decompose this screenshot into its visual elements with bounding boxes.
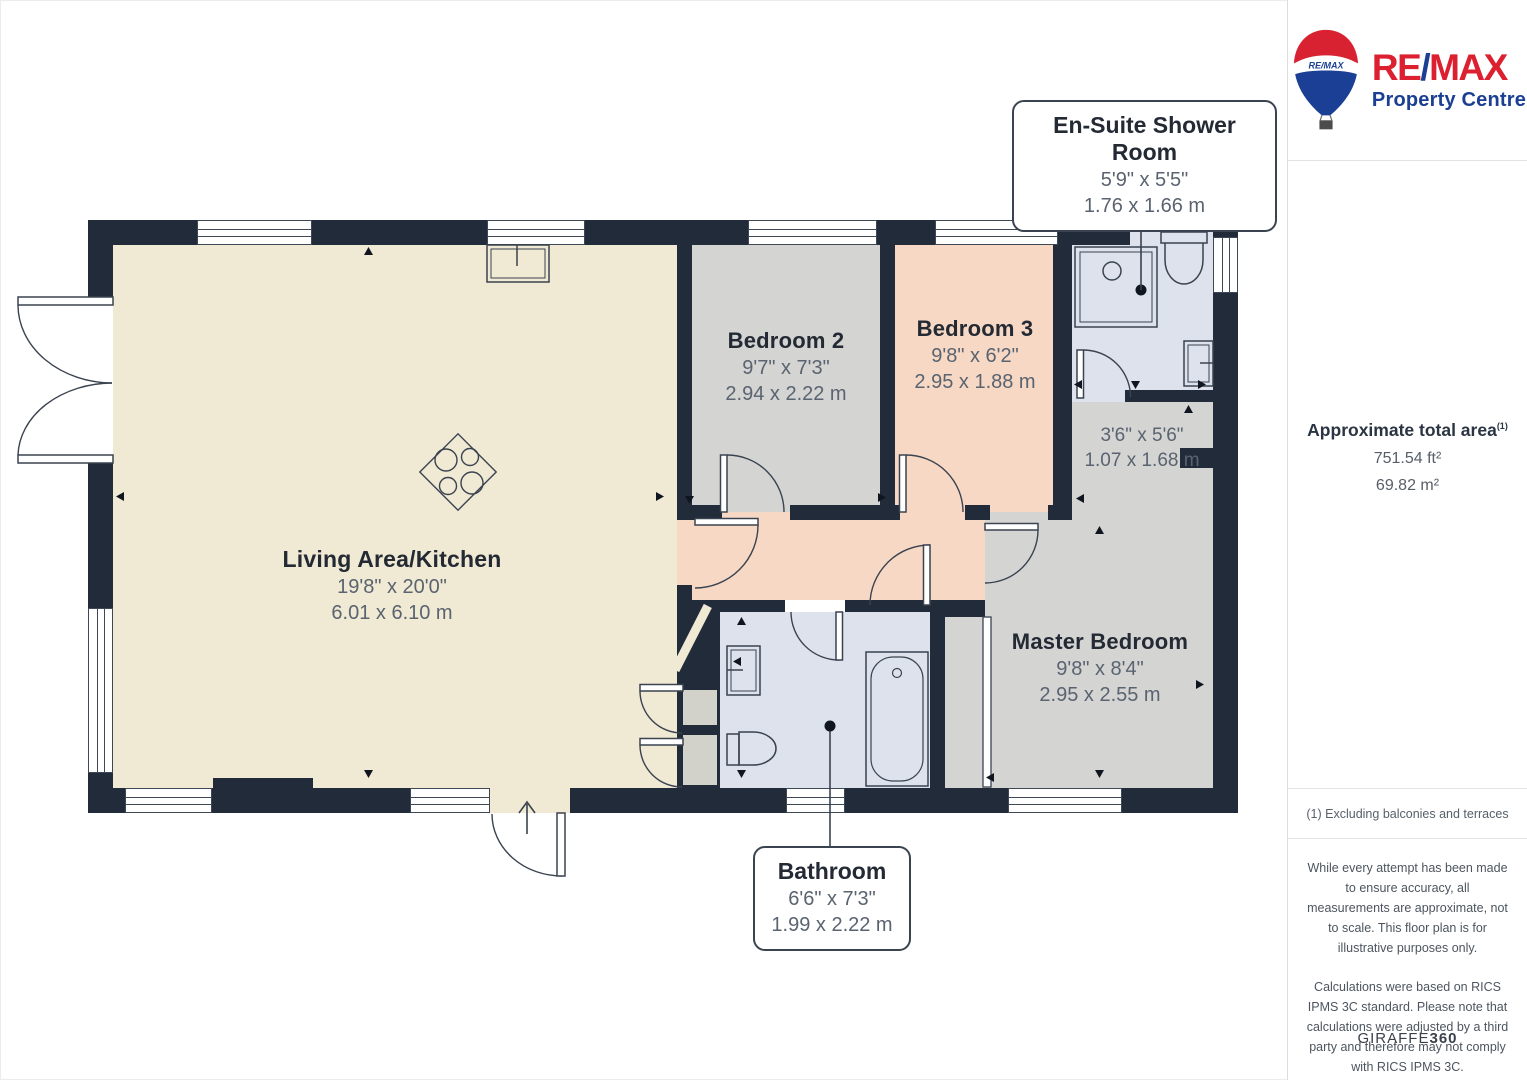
- room-dim-imperial: 9'7" x 7'3": [725, 357, 846, 380]
- cupboard-door: [640, 739, 683, 788]
- room-dim-imperial: 5'9" x 5'5": [1028, 169, 1261, 192]
- ensuite-sink-icon: [1184, 341, 1213, 386]
- room-dim-imperial: 3'6" x 5'6": [1084, 425, 1199, 447]
- room-label-living: Living Area/Kitchen 19'8" x 20'0" 6.01 x…: [283, 546, 502, 625]
- callout-bathroom: Bathroom 6'6" x 7'3" 1.99 x 2.22 m: [753, 846, 911, 951]
- bathtub-icon: [866, 652, 928, 786]
- bathroom-sink-icon: [727, 646, 760, 695]
- room-dim-metric: 1.07 x 1.68 m: [1084, 450, 1199, 472]
- room-dim-metric: 1.99 x 2.22 m: [769, 914, 895, 937]
- room-dim-imperial: 6'6" x 7'3": [769, 888, 895, 911]
- bedroom3-door: [900, 455, 964, 512]
- remax-name: RE/MAX: [1372, 49, 1526, 86]
- master-bedroom-door: [985, 524, 1038, 584]
- remax-wordmark: RE/MAX Property Centre: [1372, 49, 1526, 112]
- total-area-title: Approximate total area(1): [1288, 420, 1527, 441]
- floor-plan: Living Area/Kitchen 19'8" x 20'0" 6.01 x…: [0, 0, 1287, 1080]
- ensuite-door: [1077, 350, 1131, 398]
- shower-icon: [1075, 247, 1157, 327]
- room-label-bedroom2: Bedroom 2 9'7" x 7'3" 2.94 x 2.22 m: [725, 328, 846, 406]
- hallway-door: [695, 519, 758, 589]
- room-dim-metric: 2.94 x 2.22 m: [725, 383, 846, 406]
- room-label-bedroom3: Bedroom 3 9'8" x 6'2" 2.95 x 1.88 m: [914, 316, 1035, 394]
- room-dim-metric: 2.95 x 2.55 m: [1012, 684, 1188, 707]
- entrance-door: [492, 802, 565, 876]
- remax-balloon-icon: RE/MAX: [1289, 16, 1363, 144]
- total-area-m: 69.82 m²: [1288, 477, 1527, 495]
- room-dim-metric: 2.95 x 1.88 m: [914, 371, 1035, 394]
- room-dim-metric: 1.76 x 1.66 m: [1028, 195, 1261, 218]
- floorplan-page: Living Area/Kitchen 19'8" x 20'0" 6.01 x…: [0, 0, 1527, 1080]
- footnote: (1) Excluding balconies and terraces: [1288, 788, 1527, 839]
- room-label-master: Master Bedroom 9'8" x 8'4" 2.95 x 2.55 m: [1012, 629, 1188, 707]
- remax-tagline: Property Centre: [1372, 89, 1526, 112]
- room-name: En-Suite Shower Room: [1028, 112, 1261, 166]
- bathroom-toilet-icon: [727, 732, 776, 765]
- bedroom2-door: [721, 455, 785, 512]
- kitchen-sink-icon: [487, 245, 549, 282]
- remax-logo: RE/MAX RE/MAX Property Centre: [1288, 0, 1527, 161]
- bathroom-door: [791, 612, 843, 660]
- hallway-mid-door: [870, 545, 930, 605]
- hob-icon: [420, 434, 496, 510]
- total-area-ft: 751.54 ft²: [1288, 450, 1527, 468]
- disclaimer-text: While every attempt has been made to ens…: [1303, 858, 1512, 958]
- room-dim-imperial: 9'8" x 8'4": [1012, 658, 1188, 681]
- room-label-inner-hallway: 3'6" x 5'6" 1.07 x 1.68 m: [1084, 425, 1199, 472]
- room-name: Bathroom: [769, 858, 895, 885]
- french-doors: [18, 297, 113, 463]
- room-name: Bedroom 3: [914, 316, 1035, 342]
- disclaimer-text: Calculations were based on RICS IPMS 3C …: [1303, 977, 1512, 1077]
- sliding-door-panel: [983, 617, 991, 787]
- ensuite-toilet-icon: [1161, 232, 1207, 284]
- cupboard-door: [640, 685, 683, 734]
- room-dim-imperial: 19'8" x 20'0": [283, 576, 502, 599]
- total-area-block: Approximate total area(1) 751.54 ft² 69.…: [1288, 420, 1527, 495]
- balloon-label: RE/MAX: [1308, 60, 1344, 70]
- room-dim-metric: 6.01 x 6.10 m: [283, 602, 502, 625]
- giraffe360-logo: GIRAFFE360: [1288, 1030, 1527, 1047]
- room-dim-imperial: 9'8" x 6'2": [914, 345, 1035, 368]
- room-name: Living Area/Kitchen: [283, 546, 502, 573]
- callout-ensuite: En-Suite Shower Room 5'9" x 5'5" 1.76 x …: [1012, 100, 1277, 232]
- footnote-marker: (1): [1497, 421, 1508, 431]
- room-name: Master Bedroom: [1012, 629, 1188, 655]
- remax-slash: /: [1420, 47, 1429, 88]
- room-name: Bedroom 2: [725, 328, 846, 354]
- info-sidebar: RE/MAX RE/MAX Property Centre Approximat…: [1287, 0, 1527, 1080]
